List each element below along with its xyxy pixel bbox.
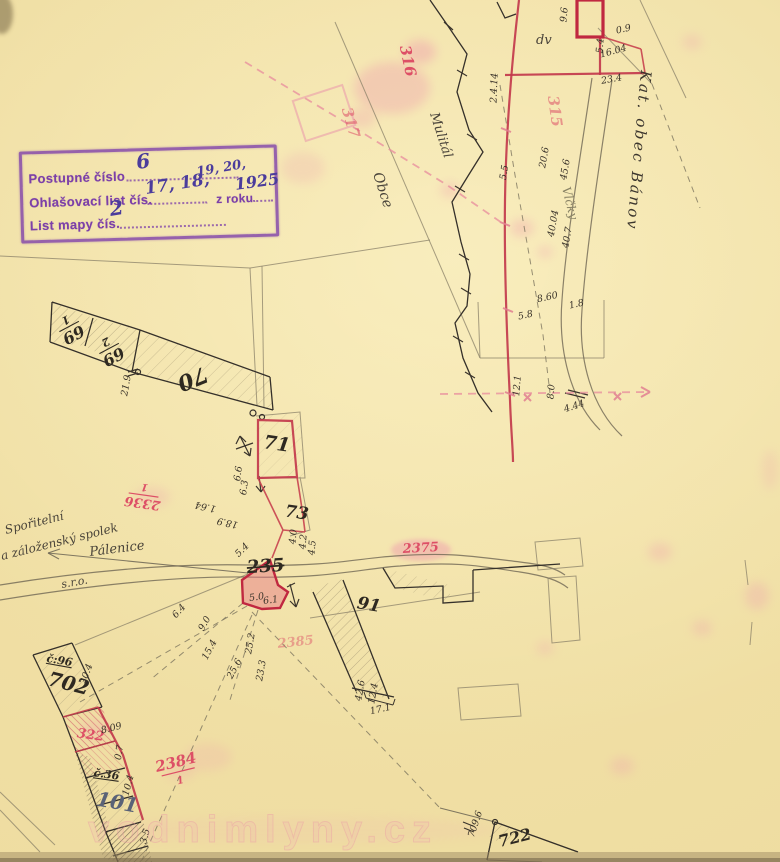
- svg-text:1: 1: [141, 481, 149, 493]
- measurement: 1.64: [194, 499, 217, 514]
- stamp-row2-year: 1925: [234, 169, 281, 194]
- measurement: 4.44: [562, 398, 586, 415]
- measurement: 15.4: [200, 638, 220, 662]
- pink-dashed-lines: [245, 62, 650, 401]
- stamp-row2-leader2: [253, 190, 273, 203]
- stamp-row3-leader: [120, 214, 226, 229]
- measurement: 20.6: [537, 146, 552, 170]
- measurement: 25.2: [243, 632, 258, 656]
- place-label-district: Kat. obec Bánov: [623, 69, 655, 232]
- survey-arrow-icon: [236, 436, 253, 456]
- watermark-text: vodnimlyny.cz: [88, 809, 438, 851]
- corner-stain: [0, 0, 13, 34]
- measurement: 6.3: [238, 479, 251, 495]
- stamp-row1-label: Postupné číslo: [28, 169, 125, 187]
- measurement: 5.8: [517, 309, 534, 323]
- place-label-vlcky: Vlčky: [559, 185, 581, 221]
- registration-stamp: Postupné číslo 6 Ohlašovací list čís. 17…: [19, 144, 279, 243]
- place-label-association-1: Spořitelní: [3, 508, 67, 537]
- measurement: 9.6: [558, 7, 570, 23]
- measurement: 6.1: [262, 594, 278, 607]
- measurement: 0.9: [615, 23, 632, 37]
- scan-edge-dark: [0, 858, 780, 862]
- place-label-dv: dv: [536, 33, 552, 48]
- measurement: 8.60: [536, 290, 559, 305]
- survey-arrow-icon: [287, 583, 299, 607]
- measurement: 9.0: [196, 614, 213, 633]
- parcel-number-73: 73: [284, 501, 310, 524]
- red-number-315: 315: [544, 95, 566, 129]
- measurement: 45.6: [558, 158, 573, 182]
- measurement: 12.1: [511, 375, 524, 397]
- measurement: 5.5: [498, 164, 511, 181]
- stamp-row3-label: List mapy čís.: [30, 216, 121, 234]
- measurement: 4.5: [306, 540, 319, 557]
- place-label-mulital: Mulitál: [426, 110, 455, 160]
- measurement: 18.9: [216, 515, 239, 530]
- stamp-row2-label: Ohlašovací list čís.: [29, 192, 152, 210]
- red-number-2385: 2385: [276, 633, 315, 652]
- measurement: 40.04: [546, 209, 562, 239]
- map-drawing: 316 317 315 2336 1 2375 2385 2384 1 322 …: [0, 0, 780, 862]
- place-label-palenice: Pálenice: [88, 538, 146, 560]
- place-label-obce: Obce: [369, 170, 396, 210]
- parcel-number-235: 235: [245, 555, 285, 579]
- measurement: 25.6: [225, 657, 245, 682]
- stamp-row2-suffix: z roku: [216, 191, 254, 206]
- parcel-number-labels: 69 1 69 2 70 71 73 91 235 702 101 722 č:…: [46, 309, 534, 851]
- parcel-number-91: 91: [355, 593, 382, 617]
- measurement: 8.0: [545, 384, 557, 400]
- measurement: 40.7: [560, 225, 575, 250]
- measurement: 2.4.14: [488, 73, 500, 105]
- cadastral-sketch-page: 316 317 315 2336 1 2375 2385 2384 1 322 …: [0, 0, 780, 862]
- measurement: 23.3: [254, 659, 269, 683]
- building-outline: [577, 0, 603, 37]
- measurement: 21.9: [119, 374, 134, 398]
- measurement: 6.6: [232, 465, 245, 481]
- stamp-row1-value: 6: [135, 148, 152, 174]
- red-number-2375: 2375: [401, 540, 439, 557]
- parcel-number-71: 71: [262, 431, 291, 456]
